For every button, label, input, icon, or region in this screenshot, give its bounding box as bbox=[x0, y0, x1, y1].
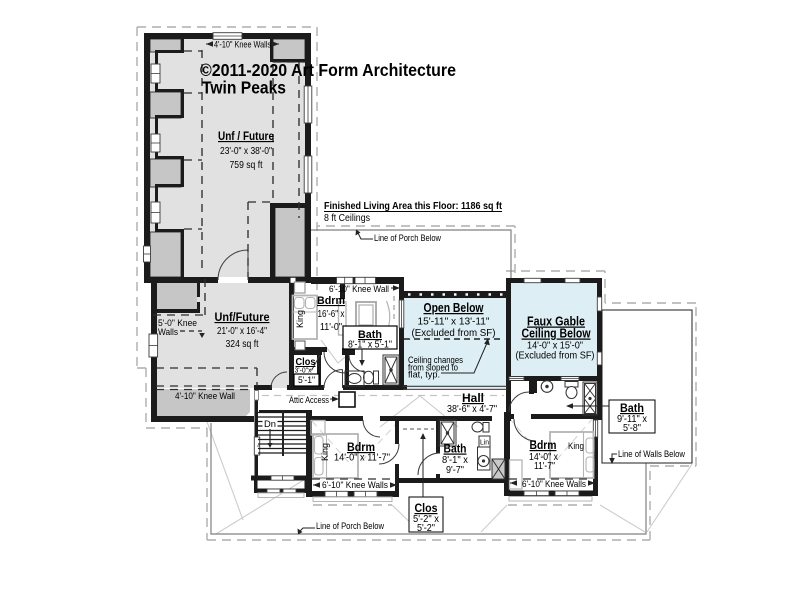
svg-text:4'-10" Knee Walls: 4'-10" Knee Walls bbox=[214, 40, 271, 51]
svg-text:11'-0": 11'-0" bbox=[320, 321, 342, 333]
svg-text:Ceiling Below: Ceiling Below bbox=[522, 327, 591, 341]
svg-text:5'-8": 5'-8" bbox=[623, 422, 641, 434]
svg-text:Unf/Future: Unf/Future bbox=[215, 312, 270, 324]
svg-text:3'-0"x: 3'-0"x bbox=[295, 366, 312, 375]
svg-text:6'-10" Knee Walls: 6'-10" Knee Walls bbox=[322, 480, 388, 491]
svg-text:11'-7": 11'-7" bbox=[534, 460, 555, 472]
svg-text:Twin Peaks: Twin Peaks bbox=[202, 78, 286, 98]
svg-text:Line of Porch Below: Line of Porch Below bbox=[374, 233, 441, 244]
svg-text:Walls: Walls bbox=[158, 327, 178, 338]
svg-text:6'-10" Knee Wall: 6'-10" Knee Wall bbox=[329, 284, 389, 295]
svg-text:324 sq ft: 324 sq ft bbox=[226, 338, 259, 350]
svg-text:King: King bbox=[295, 310, 305, 328]
svg-text:9'-7": 9'-7" bbox=[446, 464, 464, 476]
svg-text:Finished Living Area this Floo: Finished Living Area this Floor: 1186 sq… bbox=[324, 200, 502, 212]
svg-text:(Excluded from SF): (Excluded from SF) bbox=[412, 327, 496, 339]
svg-text:8'-1" x 5'-1": 8'-1" x 5'-1" bbox=[348, 340, 392, 351]
svg-text:Bdrm: Bdrm bbox=[530, 438, 557, 452]
svg-text:15'-11" x 13'-11": 15'-11" x 13'-11" bbox=[418, 316, 490, 328]
svg-text:Attic Access: Attic Access bbox=[289, 395, 329, 406]
svg-text:14'-0" x 11'-7": 14'-0" x 11'-7" bbox=[334, 452, 390, 464]
svg-text:Line of Porch Below: Line of Porch Below bbox=[316, 521, 384, 532]
svg-text:flat, typ.: flat, typ. bbox=[408, 370, 440, 380]
svg-text:Bdrm: Bdrm bbox=[317, 295, 345, 307]
svg-text:8 ft Ceilings: 8 ft Ceilings bbox=[324, 212, 370, 224]
svg-text:Open Below: Open Below bbox=[424, 301, 484, 315]
svg-text:Line of Walls Below: Line of Walls Below bbox=[618, 449, 685, 460]
svg-text:16'-6" x: 16'-6" x bbox=[318, 308, 346, 320]
svg-text:Dn: Dn bbox=[264, 419, 276, 430]
svg-text:Lin: Lin bbox=[480, 440, 489, 447]
svg-text:21'-0" x 16'-4": 21'-0" x 16'-4" bbox=[217, 325, 267, 337]
svg-text:23'-0" x 38'-0": 23'-0" x 38'-0" bbox=[220, 145, 272, 157]
svg-text:38'-6" x 4'-7": 38'-6" x 4'-7" bbox=[447, 403, 497, 415]
svg-text:King: King bbox=[320, 443, 330, 461]
svg-text:5'-1": 5'-1" bbox=[298, 375, 315, 386]
svg-text:759 sq ft: 759 sq ft bbox=[230, 159, 263, 171]
svg-text:6'-10" Knee Walls: 6'-10" Knee Walls bbox=[522, 479, 586, 490]
svg-text:5'-2": 5'-2" bbox=[417, 522, 435, 534]
svg-text:(Excluded from SF): (Excluded from SF) bbox=[516, 350, 595, 362]
svg-text:Unf / Future: Unf / Future bbox=[218, 131, 274, 143]
svg-text:4'-10" Knee Wall: 4'-10" Knee Wall bbox=[175, 391, 235, 402]
svg-text:King: King bbox=[568, 441, 584, 451]
